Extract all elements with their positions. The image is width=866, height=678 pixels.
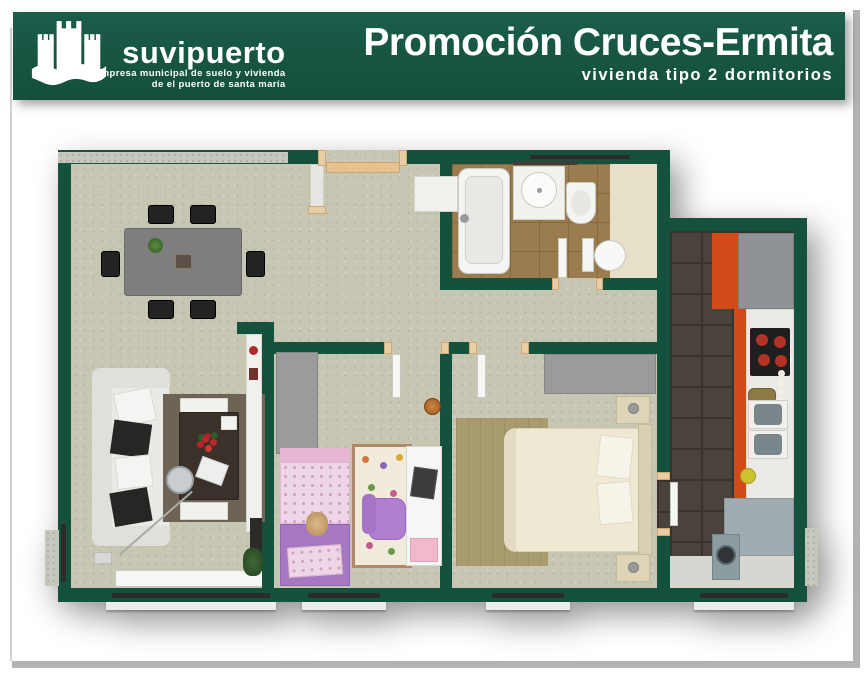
window-living-bottom [112,593,270,598]
window-kitchen-bottom [700,593,788,598]
master-headboard [638,424,652,556]
fridge [738,233,794,309]
doormat [414,176,458,212]
sink-drain [537,188,542,193]
sill-living [106,602,276,610]
kids-door-frame-right [441,342,449,354]
shelf-item-vase [249,368,258,380]
wall-right-lower [657,530,670,588]
flyer-page: suvipuerto empresa municipal de suelo y … [0,0,866,678]
master-pillow [596,434,634,479]
window-kids-bottom [308,593,380,598]
bath-door-frame-left [552,278,559,290]
sofa-arm-top [92,368,170,388]
wall-kitchen-top [657,218,807,231]
window-living-left [61,524,66,582]
kids-bed-pillow [287,544,343,578]
kitchen-door-frame-top [657,472,670,480]
dining-chair [190,300,216,319]
master-door-frame-left [469,342,477,354]
bidet-basin [571,190,591,216]
teddy-bear [306,512,328,536]
kids-bed-headboard [280,448,350,462]
master-door-frame-right [521,342,529,354]
washing-machine-door [716,545,736,565]
toilet-bowl [594,240,626,271]
kitchen-door-frame-bottom [657,528,670,536]
bath-door-frame-right [596,278,603,290]
front-door-frame-left [318,150,326,166]
pillar-left [45,530,59,586]
floorplan [0,0,866,678]
bath-door-leaf [558,238,567,278]
sofa-pillow-white [114,454,153,490]
kids-door-leaf [392,354,401,398]
nightstand-lamp [628,403,639,414]
sill-kids [302,602,386,610]
shelf-unit [246,334,262,532]
arc-lamp-base [94,552,112,564]
dining-plant [148,238,163,253]
cooktop [750,328,790,376]
bathtub-basin [465,176,503,264]
kids-chair-back [362,494,376,534]
dining-chair [148,205,174,224]
kitchen-door-leaf [670,482,678,526]
window-lintel-dining [58,152,288,163]
sill-master [486,602,570,610]
sofa-back [92,388,112,526]
floor-kitchen-door-threshold [657,480,670,528]
bathtub-faucet [460,214,469,223]
floor-bath-door-threshold [558,278,598,290]
wall-hall-stub [237,322,274,334]
hall-door-frame [308,206,326,214]
kids-door-frame-left [384,342,392,354]
nightstand-lamp [628,562,639,573]
poinsettia-flower [202,436,209,443]
kitchen-tall-cabinet [712,233,738,309]
kitchen-sink-2-basin [754,434,782,455]
sofa-pillow-black [109,487,152,527]
front-door-frame-right [399,150,407,166]
dining-chair [101,251,120,277]
front-door-leaf [326,162,400,173]
window-master-bottom [492,593,564,598]
wall-bathroom-bottom-a [440,278,558,290]
table-box [221,416,237,430]
dining-centerpiece [175,254,192,269]
wall-hall-white [310,164,324,208]
master-wardrobe [544,354,656,394]
dining-chair [190,205,216,224]
pillar-kitchen-right [805,528,818,586]
toilet-tank [582,238,594,272]
wall-right-upper [657,150,670,480]
dining-chair [148,300,174,319]
kitchen-base-cabinets [734,309,746,519]
juicer [740,468,756,484]
master-pillow [596,481,634,526]
living-plant [243,548,263,576]
computer [410,466,438,499]
wall-corridor-c [525,342,657,354]
dining-chair [246,251,265,277]
master-door-leaf [477,354,486,398]
master-bed-foot-fold [504,428,516,552]
wall-bathroom-bottom-b [598,278,657,290]
kitchen-sink-1-basin [754,404,782,425]
living-bench-bottom [180,502,228,520]
bathroom-shelf [513,161,577,165]
eggs [778,370,785,377]
window-bathroom [530,155,630,159]
kids-wardrobe [276,352,318,454]
arc-lamp-shade [166,466,194,494]
cooktop-burners [756,334,768,346]
sofa-pillow-black [110,420,152,459]
shelf-item-red [249,346,258,355]
kids-desk-drawers [410,538,438,562]
sill-kitchen [694,602,794,610]
basketball [424,398,441,415]
alphabet-rug-letters [362,456,369,463]
